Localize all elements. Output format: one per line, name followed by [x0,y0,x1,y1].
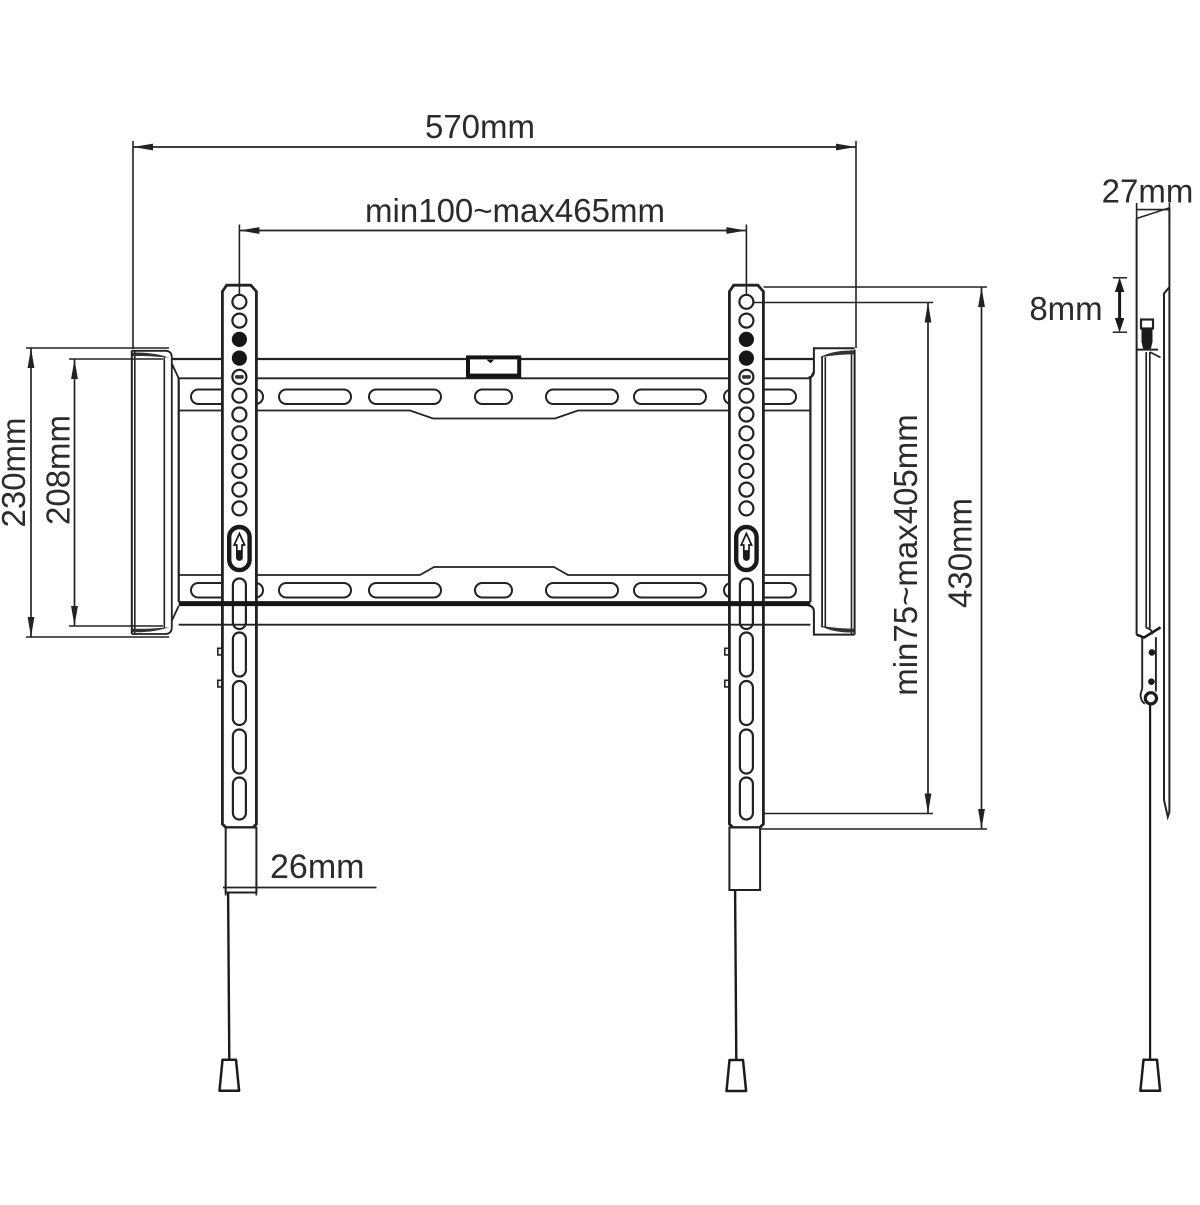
svg-text:208mm: 208mm [40,415,77,525]
svg-text:430mm: 430mm [942,498,979,608]
svg-text:570mm: 570mm [425,108,535,145]
svg-text:230mm: 230mm [0,417,32,527]
svg-text:27mm: 27mm [1102,173,1194,210]
svg-text:8mm: 8mm [1029,290,1102,327]
svg-text:min100~max465mm: min100~max465mm [365,192,665,229]
svg-text:26mm: 26mm [270,848,364,886]
svg-text:min75~max405mm: min75~max405mm [887,414,924,696]
